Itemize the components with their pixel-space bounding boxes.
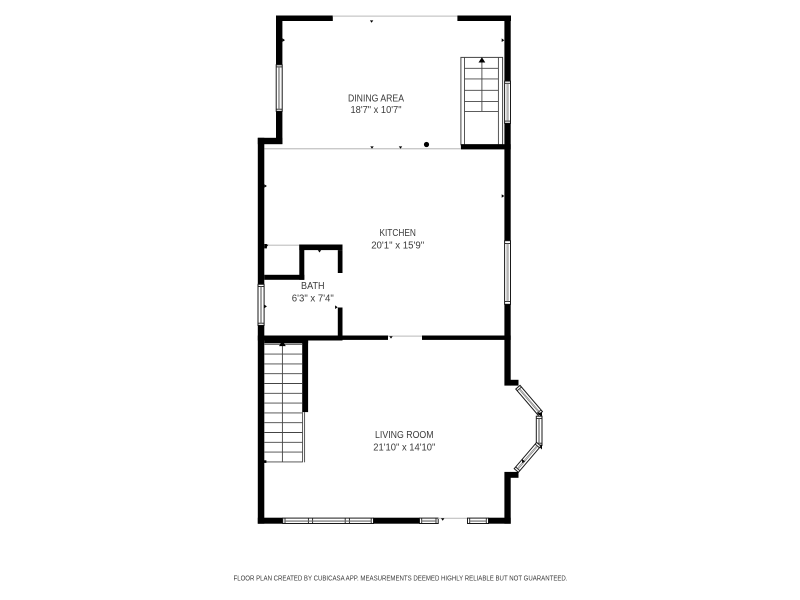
svg-text:18'7" x 10'7": 18'7" x 10'7": [351, 105, 402, 116]
svg-text:BATH: BATH: [301, 281, 325, 292]
svg-text:21'10" x 14'10": 21'10" x 14'10": [373, 443, 435, 454]
svg-text:DINING AREA: DINING AREA: [348, 94, 404, 105]
svg-text:LIVING ROOM: LIVING ROOM: [375, 430, 434, 441]
svg-text:KITCHEN: KITCHEN: [379, 228, 416, 239]
svg-text:FLOOR PLAN CREATED BY CUBICASA: FLOOR PLAN CREATED BY CUBICASA APP. MEAS…: [234, 574, 568, 583]
svg-text:20'1" x 15'9": 20'1" x 15'9": [371, 240, 425, 251]
svg-text:6'3" x 7'4": 6'3" x 7'4": [292, 294, 335, 305]
